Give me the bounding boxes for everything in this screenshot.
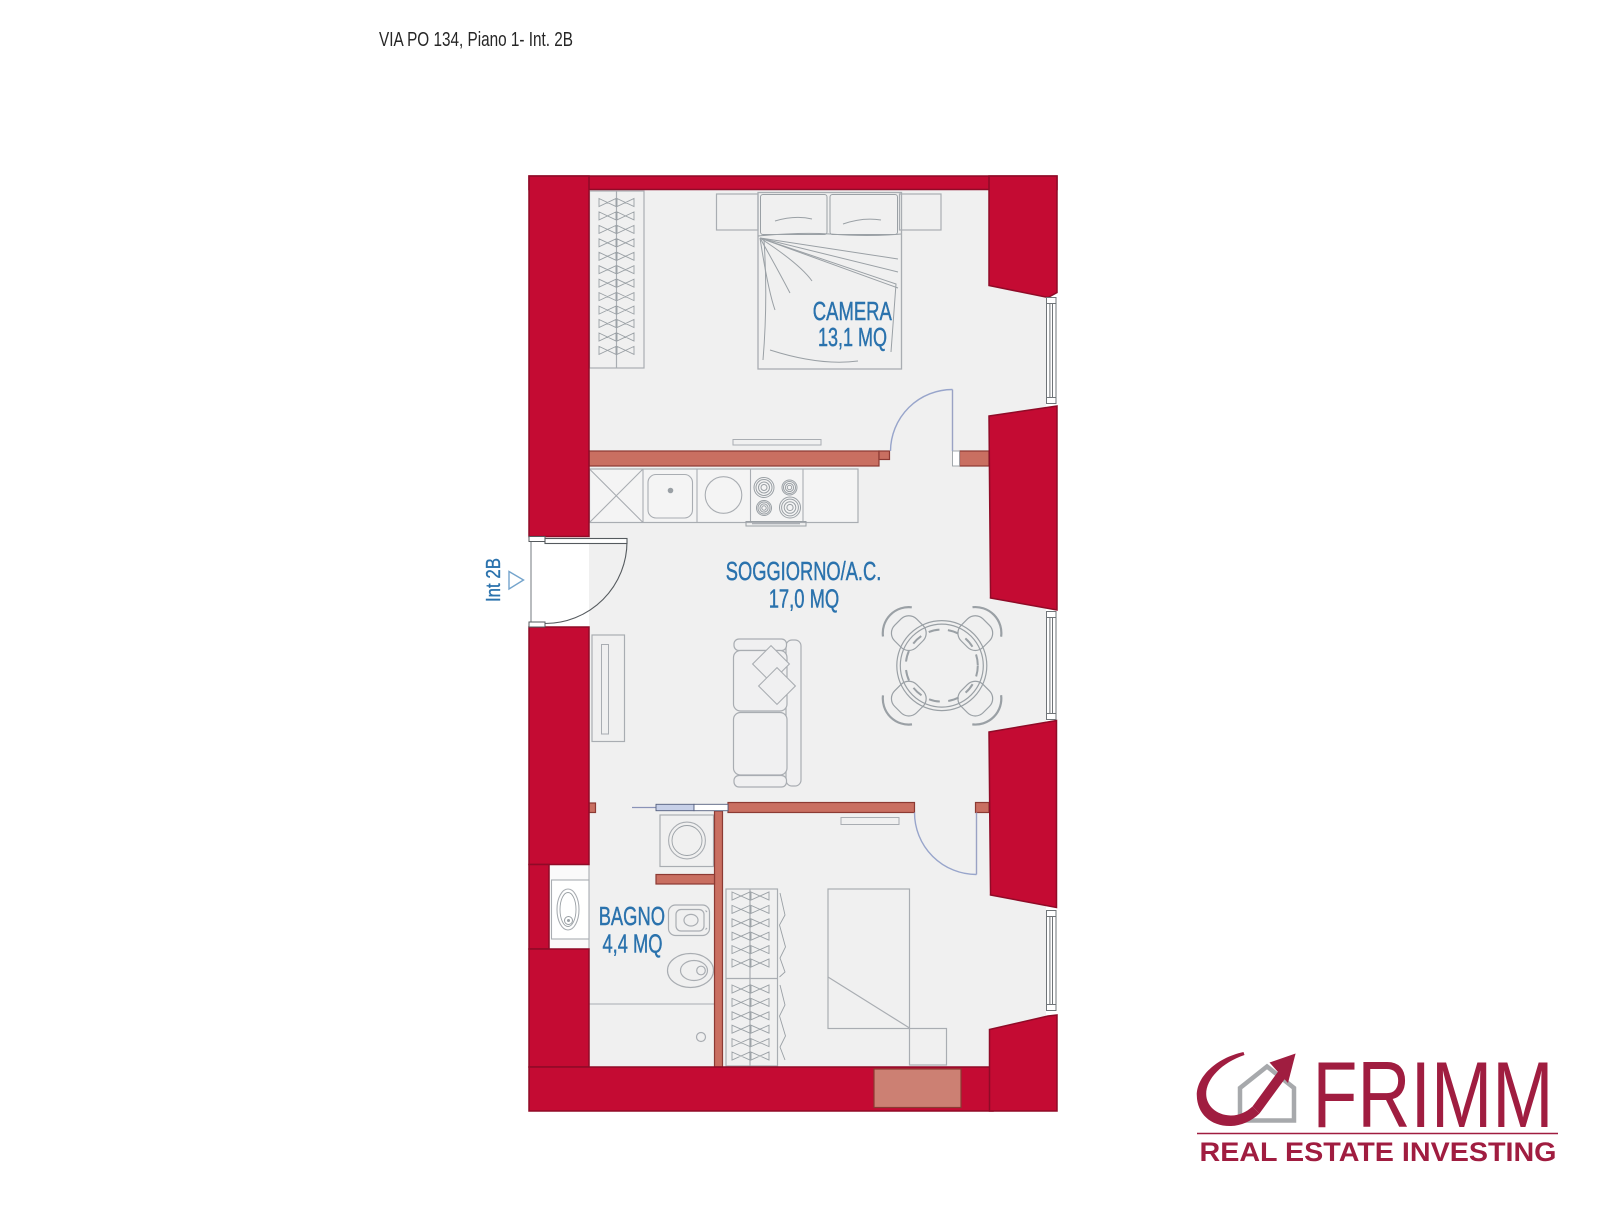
svg-text:REAL ESTATE INVESTING: REAL ESTATE INVESTING <box>1200 1137 1557 1167</box>
svg-text:Int 2B: Int 2B <box>483 558 505 602</box>
svg-text:17,0 MQ: 17,0 MQ <box>769 586 840 614</box>
svg-text:FRIMM: FRIMM <box>1313 1042 1554 1147</box>
svg-text:SOGGIORNO/A.C.: SOGGIORNO/A.C. <box>726 558 882 586</box>
svg-text:13,1 MQ: 13,1 MQ <box>818 324 887 352</box>
svg-text:4,4 MQ: 4,4 MQ <box>603 931 663 959</box>
svg-text:VIA PO 134, Piano 1- Int. 2B: VIA PO 134, Piano 1- Int. 2B <box>379 28 573 51</box>
svg-text:BAGNO: BAGNO <box>599 903 665 931</box>
svg-text:CAMERA: CAMERA <box>813 298 892 326</box>
